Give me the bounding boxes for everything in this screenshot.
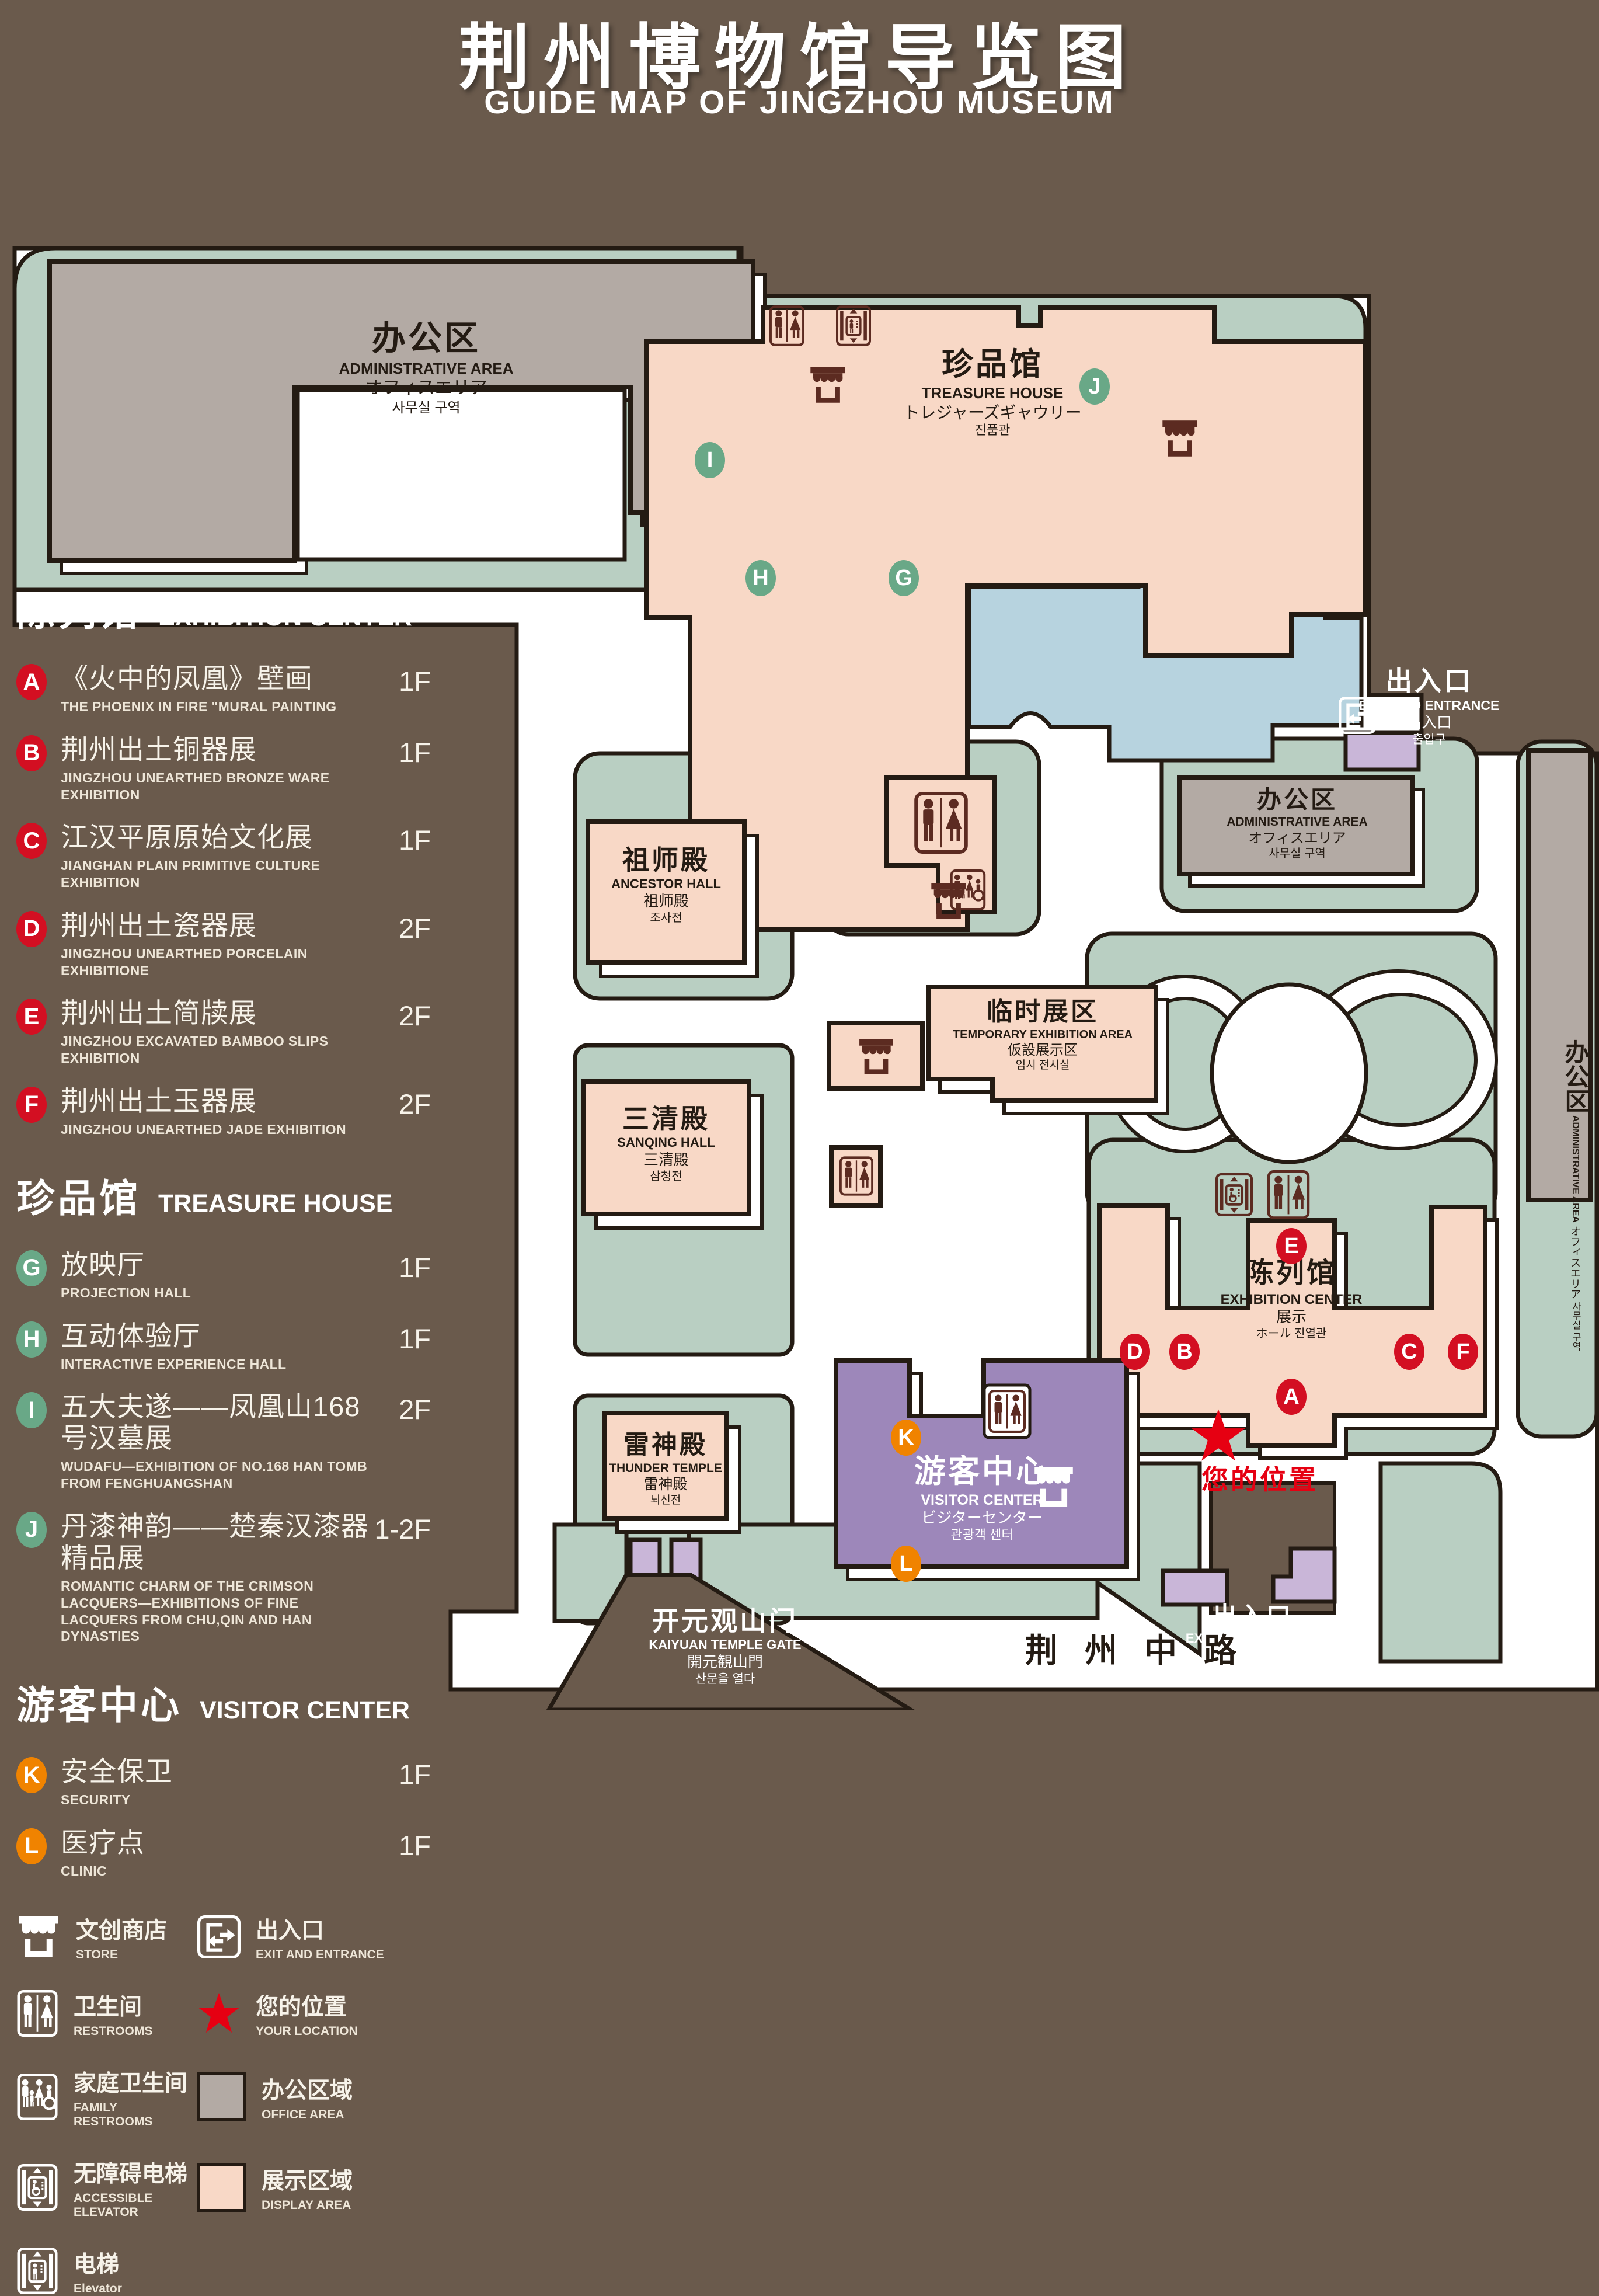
legend-item-zh: 丹漆神韵——楚秦汉漆器精品展 [61, 1511, 372, 1574]
legend-symbol-en: DISPLAY AREA [262, 2198, 353, 2212]
legend-item-en: SECURITY [61, 1791, 173, 1808]
legend-item-zh: 五大夫遂——凤凰山168号汉墓展 [61, 1391, 372, 1454]
label-temporary-exhibition: 临时展区 TEMPORARY EXHIBITION AREA 仮設展示区 임시 … [953, 996, 1133, 1073]
map-marker-C: C [1394, 1334, 1424, 1370]
legend-section-title-zh: 陈列馆 [16, 581, 141, 637]
legend-item-zh: 《火中的凤凰》壁画 [61, 663, 337, 694]
legend-item-en: JINGZHOU UNEARTHED PORCELAIN EXHIBITIONE [61, 945, 372, 979]
legend-panel: 陈列馆EXHIBITION CENTERA《火中的凤凰》壁画THE PHOENI… [16, 581, 448, 2296]
elevator-icon [16, 2248, 58, 2294]
legend-item-badge: G [16, 1250, 47, 1286]
legend-item-en: WUDAFU—EXHIBITION OF NO.168 HAN TOMB FRO… [61, 1458, 372, 1492]
legend-symbol-zh: 您的位置 [256, 1989, 358, 2022]
legend-item-en: JINGZHOU UNEARTHED BRONZE WARE EXHIBITIO… [61, 770, 372, 803]
map-marker-K: K [891, 1420, 921, 1456]
label-exhibition-center: 陈列馆 EXHIBITION CENTER 展示 ホール 진열관 [1221, 1257, 1363, 1341]
map-marker-J: J [1079, 368, 1110, 405]
accessible-elevator-icon [16, 2164, 58, 2211]
label-kaiyuan-gate: 开元观山门 KAIYUAN TEMPLE GATE 開元観山門 산문을 열다 [649, 1605, 801, 1686]
legend-item-en: JINGZHOU UNEARTHED JADE EXHIBITION [61, 1121, 346, 1138]
map-marker-I: I [695, 442, 725, 478]
map-marker-H: H [745, 560, 776, 596]
legend-symbol: 展示区域DISPLAY AREA [197, 2163, 448, 2212]
legend-item-floor: 1F [399, 665, 431, 697]
legend-section-title-zh: 珍品馆 [16, 1167, 141, 1223]
label-visitor-center: 游客中心 VISITOR CENTER ビジターセンター 관광객 센터 [914, 1453, 1050, 1543]
display-area-swatch [197, 2163, 246, 2212]
legend-symbol-en: STORE [76, 1948, 167, 1962]
legend-symbol-zh: 无障碍电梯 [74, 2156, 197, 2189]
legend-symbol: 卫生间RESTROOMS [16, 1989, 197, 2038]
legend-item: G放映厅PROJECTION HALL1F [16, 1249, 448, 1302]
label-road: 荆州中路 [1025, 1624, 1263, 1672]
label-ancestor-hall: 祖师殿 ANCESTOR HALL 祖师殿 조사전 [611, 844, 721, 925]
location-star-icon [197, 1993, 241, 2034]
legend-item-floor: 1F [399, 824, 431, 856]
guide-map-poster: 荆州博物馆导览图 GUIDE MAP OF JINGZHOU MUSEUM [0, 0, 1599, 1710]
map-marker-D: D [1120, 1334, 1150, 1370]
legend-symbol-zh: 卫生间 [74, 1989, 152, 2022]
legend-symbol: 家庭卫生间FAMILY RESTROOMS [16, 2065, 197, 2129]
legend-item-en: ROMANTIC CHARM OF THE CRIMSON LACQUERS—E… [61, 1578, 372, 1645]
label-admin-top-left: 办公区 ADMINISTRATIVE AREA オフィスエリア 사무실 구역 [339, 318, 514, 416]
exit-icon [197, 1915, 241, 1958]
map-marker-G: G [889, 560, 919, 596]
legend-item-zh: 安全保卫 [61, 1756, 173, 1787]
legend-symbol-en: Elevator [74, 2282, 122, 2296]
legend-symbol-en: FAMILY RESTROOMS [74, 2101, 197, 2129]
legend-symbol-en: EXIT AND ENTRANCE [256, 1948, 384, 1962]
family-restrooms-icon [16, 2074, 58, 2120]
legend-item: A《火中的凤凰》壁画THE PHOENIX IN FIRE "MURAL PAI… [16, 663, 448, 715]
accessible-elevator-icon [1217, 1174, 1252, 1215]
legend-item-en: JINGZHOU EXCAVATED BAMBOO SLIPS EXHIBITI… [61, 1033, 372, 1067]
legend-symbol-zh: 出入口 [256, 1912, 384, 1945]
legend-item-badge: A [16, 664, 47, 700]
legend-item-floor: 1F [399, 1829, 431, 1862]
label-admin-right: 办公区 ADMINISTRATIVE AREA オフィスエリア 사무실 구역 [1227, 785, 1368, 861]
legend-item-badge: H [16, 1321, 47, 1358]
legend-section: 珍品馆TREASURE HOUSEG放映厅PROJECTION HALL1FH互… [16, 1167, 448, 1645]
legend-symbol-zh: 办公区域 [262, 2072, 353, 2105]
legend-item-floor: 1F [399, 1251, 431, 1283]
legend-item: I五大夫遂——凤凰山168号汉墓展WUDAFU—EXHIBITION OF NO… [16, 1391, 448, 1492]
legend-symbols: 文创商店STORE出入口EXIT AND ENTRANCE卫生间RESTROOM… [16, 1912, 448, 2296]
legend-symbol-zh: 电梯 [74, 2246, 122, 2279]
map-marker-B: B [1169, 1334, 1200, 1370]
legend-item-zh: 江汉平原原始文化展 [61, 822, 372, 853]
legend-item-zh: 放映厅 [61, 1249, 191, 1281]
legend-item-en: JIANGHAN PLAIN PRIMITIVE CULTURE EXHIBIT… [61, 857, 372, 891]
office-area-swatch [197, 2072, 246, 2121]
legend-section-header: 陈列馆EXHIBITION CENTER [16, 581, 448, 637]
legend-item-floor: 1F [399, 1758, 431, 1790]
legend-item-badge: C [16, 823, 47, 859]
map-marker-F: F [1448, 1334, 1478, 1370]
legend-item-badge: L [16, 1828, 47, 1864]
legend-item-badge: K [16, 1757, 47, 1793]
map-marker-A: A [1276, 1379, 1307, 1415]
legend-item-zh: 荆州出土瓷器展 [61, 910, 372, 941]
legend-symbol-zh: 家庭卫生间 [74, 2065, 197, 2098]
legend-item-en: CLINIC [61, 1863, 145, 1880]
label-sanqing-hall: 三清殿 SANQING HALL 三清殿 삼청전 [617, 1102, 715, 1184]
legend-section: 陈列馆EXHIBITION CENTERA《火中的凤凰》壁画THE PHOENI… [16, 581, 448, 1138]
store-kiosk [829, 1023, 922, 1088]
store-icon [16, 1916, 61, 1957]
legend-item-floor: 1F [399, 1323, 431, 1355]
legend-symbol-zh: 文创商店 [76, 1912, 167, 1945]
exit-bottom-booth-1 [1163, 1571, 1227, 1605]
legend-symbol: 办公区域OFFICE AREA [197, 2072, 448, 2122]
legend-symbol-en: RESTROOMS [74, 2024, 152, 2038]
legend-item: E荆州出土简牍展JINGZHOU EXCAVATED BAMBOO SLIPS … [16, 997, 448, 1067]
legend-item-floor: 2F [399, 912, 431, 944]
your-location-star [1190, 1410, 1246, 1466]
legend-item-badge: E [16, 999, 47, 1035]
legend-item-floor: 2F [399, 1393, 431, 1425]
legend-item-en: INTERACTIVE EXPERIENCE HALL [61, 1356, 287, 1373]
legend-item-zh: 医疗点 [61, 1827, 145, 1859]
legend-symbol: 文创商店STORE [16, 1912, 197, 1962]
legend-section-title-en: TREASURE HOUSE [158, 1189, 392, 1218]
legend-item: K安全保卫SECURITY1F [16, 1756, 448, 1808]
legend-symbol: 出入口EXIT AND ENTRANCE [197, 1912, 448, 1962]
legend-item-floor: 1-2F [374, 1513, 431, 1545]
legend-item-zh: 荆州出土铜器展 [61, 734, 372, 766]
legend-item-zh: 荆州出土玉器展 [61, 1086, 346, 1117]
legend-item-zh: 互动体验厅 [61, 1320, 287, 1352]
legend-item: D荆州出土瓷器展JINGZHOU UNEARTHED PORCELAIN EXH… [16, 910, 448, 979]
legend-item-badge: D [16, 911, 47, 947]
legend-item-badge: B [16, 735, 47, 771]
legend-section: 游客中心VISITOR CENTERK安全保卫SECURITY1FL医疗点CLI… [16, 1674, 448, 1880]
label-treasure-house: 珍品馆 TREASURE HOUSE トレジャーズギャウリー 진품관 [903, 346, 1081, 439]
legend-item: B荆州出土铜器展JINGZHOU UNEARTHED BRONZE WARE E… [16, 734, 448, 803]
legend-section-title-en: VISITOR CENTER [200, 1696, 410, 1725]
legend-item-badge: I [16, 1392, 47, 1428]
your-location-text: 您的位置 [1201, 1459, 1318, 1497]
map-marker-L: L [891, 1546, 921, 1582]
legend-section-header: 游客中心VISITOR CENTER [16, 1674, 448, 1730]
legend-symbol-en: OFFICE AREA [262, 2108, 353, 2122]
legend-symbol: 您的位置YOUR LOCATION [197, 1989, 448, 2038]
legend-item-en: PROJECTION HALL [61, 1285, 191, 1302]
label-thunder-temple: 雷神殿 THUNDER TEMPLE 雷神殿 뇌신전 [609, 1429, 722, 1507]
legend-item-badge: F [16, 1087, 47, 1123]
legend-symbol: 无障碍电梯ACCESSIBLE ELEVATOR [16, 2156, 197, 2220]
legend-item-en: THE PHOENIX IN FIRE "MURAL PAINTING [61, 698, 337, 715]
legend-symbol: 电梯Elevator [16, 2246, 197, 2296]
map-marker-E: E [1276, 1228, 1307, 1264]
legend-item: J丹漆神韵——楚秦汉漆器精品展ROMANTIC CHARM OF THE CRI… [16, 1511, 448, 1645]
legend-item-floor: 2F [399, 1088, 431, 1120]
legend-symbol-zh: 展示区域 [262, 2163, 353, 2196]
legend-item: C江汉平原原始文化展JIANGHAN PLAIN PRIMITIVE CULTU… [16, 822, 448, 891]
legend-section-title-zh: 游客中心 [16, 1674, 182, 1730]
label-exit-right: 出入口 EXIT AND ENTRANCE 出入口 출입구 [1359, 665, 1500, 747]
legend-item-zh: 荆州出土简牍展 [61, 997, 372, 1029]
restrooms-icon [16, 1990, 58, 2037]
legend-item-floor: 2F [399, 1000, 431, 1032]
legend-symbol-en: YOUR LOCATION [256, 2024, 358, 2038]
legend-item-floor: 1F [399, 736, 431, 768]
garden-pond [1212, 985, 1366, 1162]
legend-item: F荆州出土玉器展JINGZHOU UNEARTHED JADE EXHIBITI… [16, 1086, 448, 1138]
legend-item: L医疗点CLINIC1F [16, 1827, 448, 1880]
legend-item-badge: J [16, 1512, 47, 1548]
grounds-bottom-right [1381, 1463, 1500, 1661]
legend-section-title-en: EXHIBITION CENTER [158, 603, 412, 632]
legend-symbol-en: ACCESSIBLE ELEVATOR [74, 2191, 197, 2220]
legend-section-header: 珍品馆TREASURE HOUSE [16, 1167, 448, 1223]
legend-item: H互动体验厅INTERACTIVE EXPERIENCE HALL1F [16, 1320, 448, 1373]
label-admin-far-right: 办公区 ADMINISTRATIVE AREA オフィスエリア 사무실 구역 [1525, 1039, 1589, 1351]
